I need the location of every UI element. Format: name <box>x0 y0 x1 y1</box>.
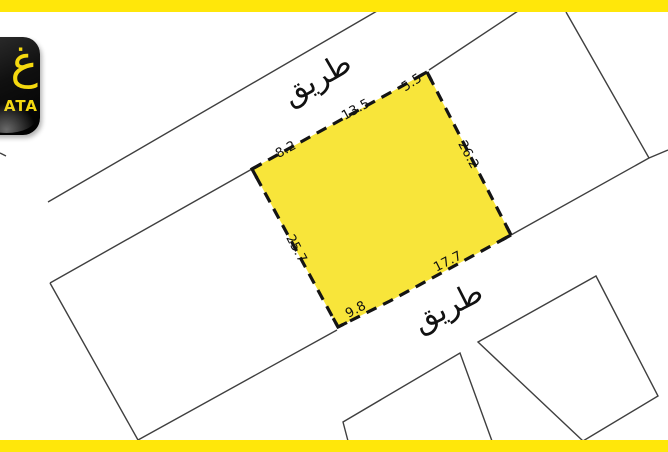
parcel-bottom-right <box>478 276 658 441</box>
bottom-accent-bar <box>0 440 668 452</box>
parcel-bottom-center <box>343 353 492 441</box>
brand-logo: غ ATA <box>0 37 40 135</box>
logo-arabic-glyph: غ <box>11 39 38 85</box>
top-accent-bar <box>0 0 668 12</box>
plot-map-image[interactable]: طريق طريق 8.2 13.5 5.5 26.2 17.7 9.8 25.… <box>0 0 668 452</box>
